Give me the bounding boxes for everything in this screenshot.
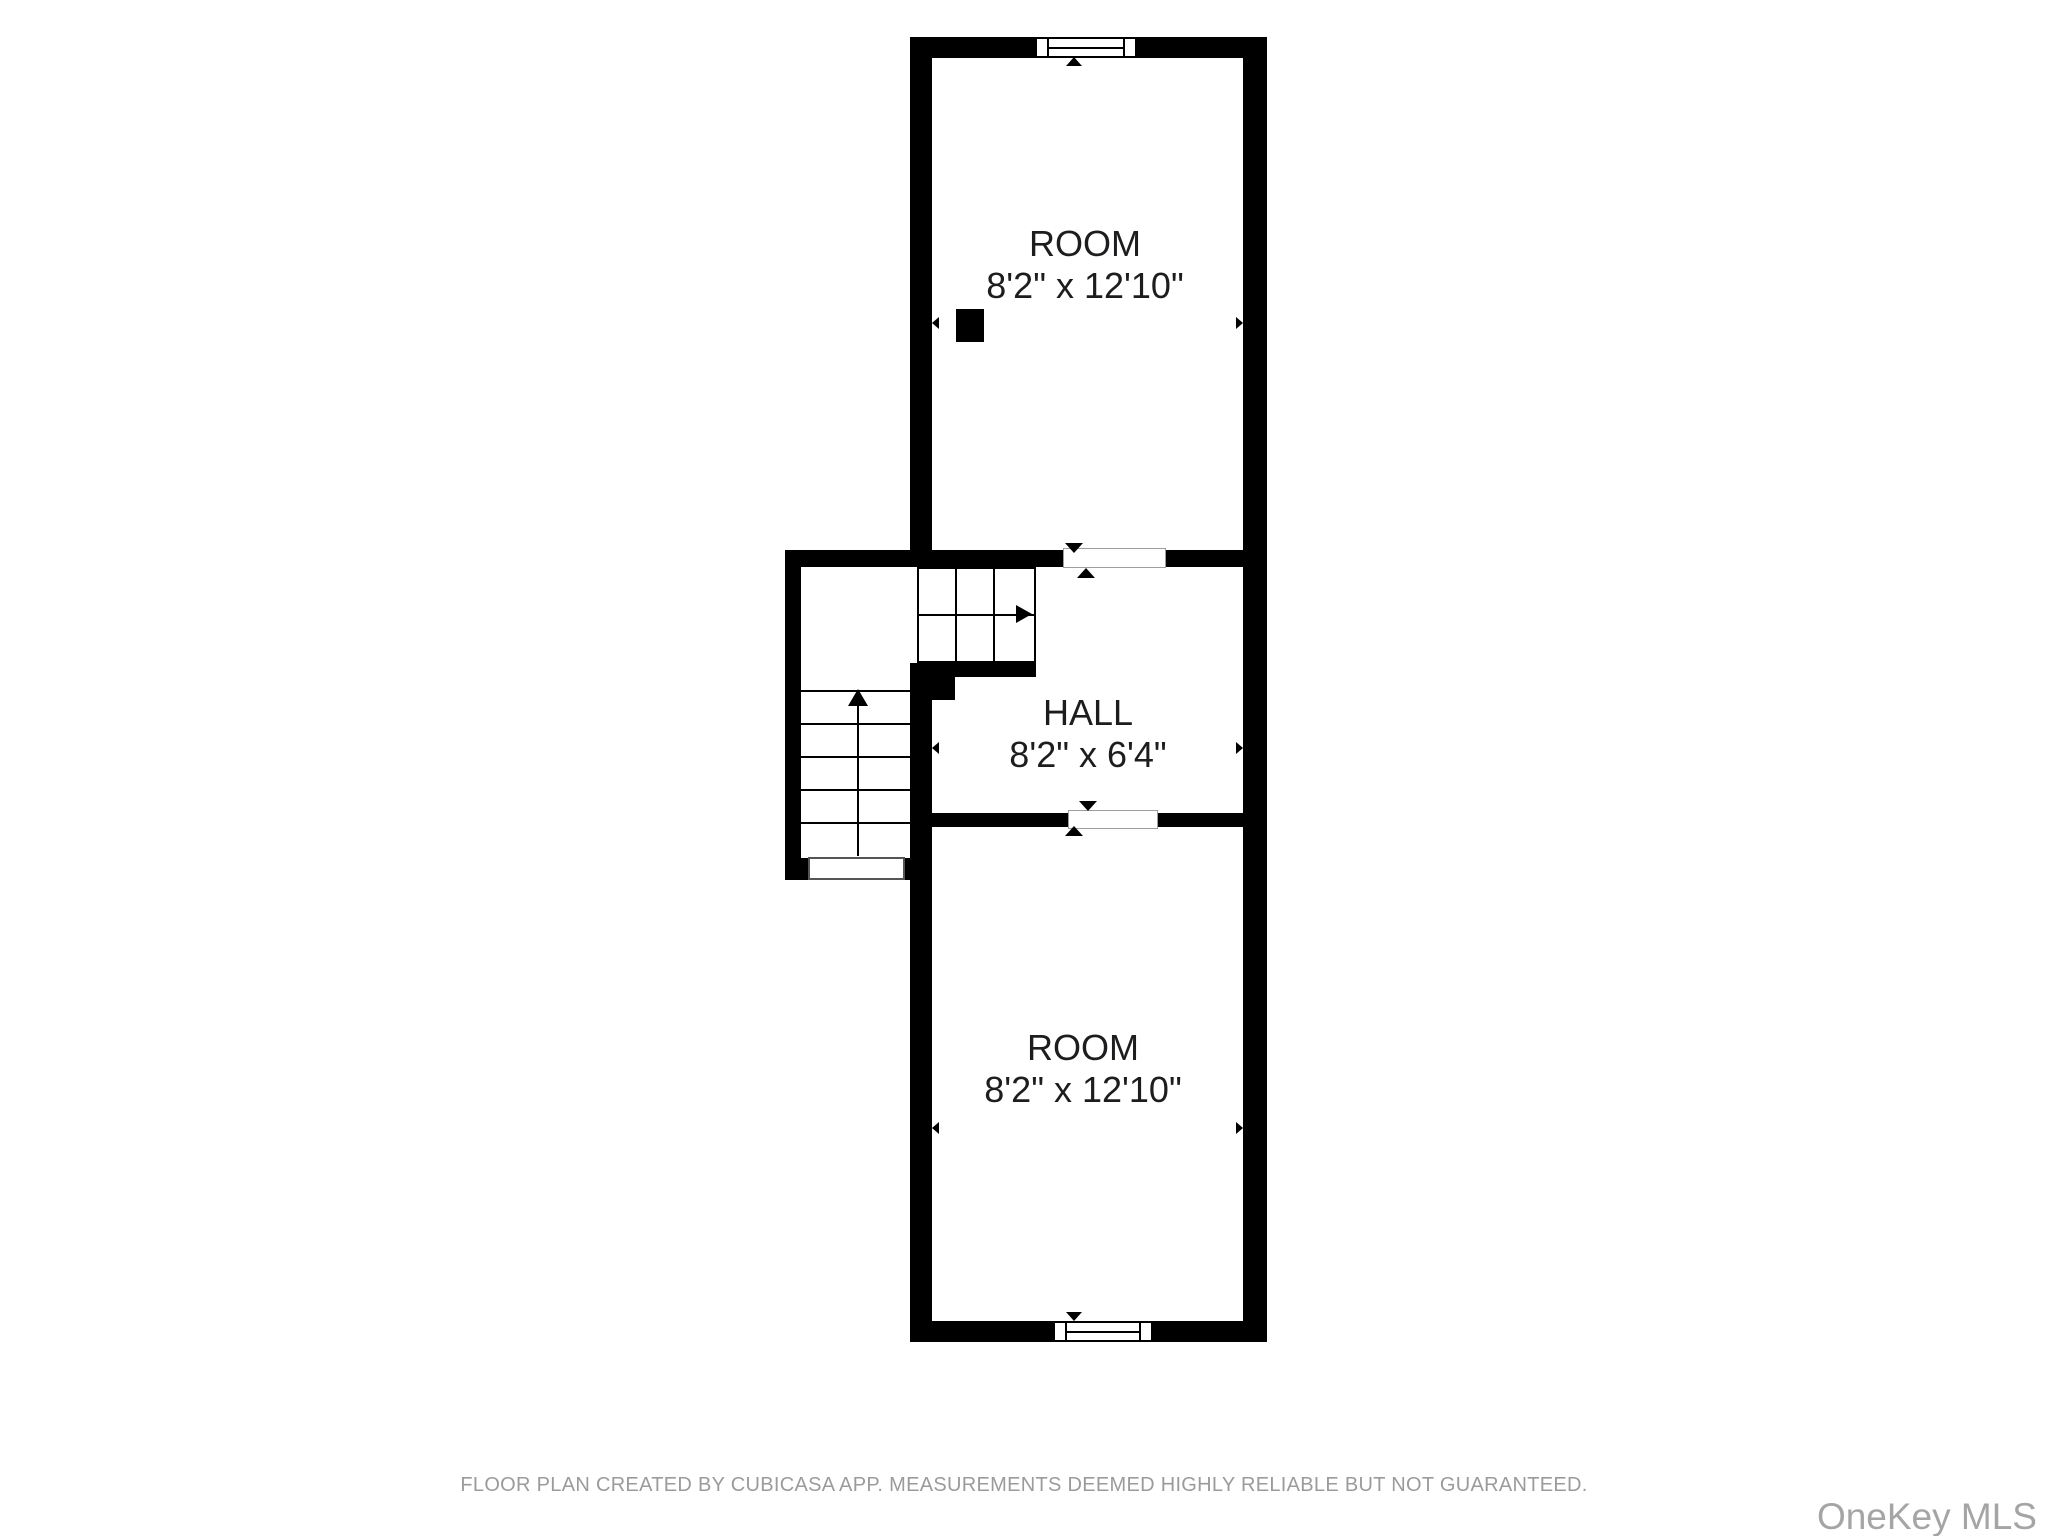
- room-dimensions: 8'2" x 12'10": [986, 265, 1183, 307]
- dimension-arrow-icon: [932, 317, 939, 329]
- wall-stair-left: [785, 550, 801, 880]
- wall-under-winder-chunk: [917, 677, 955, 700]
- dimension-arrow-icon: [1236, 317, 1243, 329]
- opening-marker-icon: [1077, 568, 1095, 578]
- wall-left-lower: [910, 663, 932, 1342]
- hall-label: HALL 8'2" x 6'4": [1009, 692, 1166, 776]
- footer-disclaimer: FLOOR PLAN CREATED BY CUBICASA APP. MEAS…: [460, 1474, 1587, 1497]
- window-bottom: [1053, 1321, 1153, 1342]
- room-name: HALL: [1009, 692, 1166, 734]
- floor-plan-canvas: ROOM 8'2" x 12'10" HALL 8'2" x 6'4" ROOM…: [0, 0, 2048, 1536]
- staircase-straight-run: [801, 690, 910, 858]
- stair-up-arrow-icon: [848, 689, 868, 706]
- room-top-label: ROOM 8'2" x 12'10": [986, 223, 1183, 307]
- opening-marker-icon: [1065, 543, 1083, 553]
- opening-stair-exit: [808, 857, 905, 880]
- stair-tread-line: [801, 756, 910, 758]
- window-top: [1035, 37, 1137, 58]
- room-dimensions: 8'2" x 12'10": [984, 1069, 1181, 1111]
- window-sill-line: [1047, 47, 1125, 49]
- room-dimensions: 8'2" x 6'4": [1009, 734, 1166, 776]
- window-marker-icon: [1066, 1312, 1082, 1321]
- wall-left-upper: [910, 37, 932, 567]
- wall-hall-bottomroom-right: [1158, 813, 1243, 827]
- stair-up-arrow-shaft: [857, 705, 859, 856]
- room-bottom-label: ROOM 8'2" x 12'10": [984, 1027, 1181, 1111]
- dimension-arrow-icon: [932, 742, 939, 754]
- dimension-arrow-icon: [1236, 1122, 1243, 1134]
- dimension-arrow-icon: [1236, 742, 1243, 754]
- wall-under-winder-strip: [917, 663, 1036, 677]
- wall-toproom-hall-right: [1166, 550, 1243, 567]
- dimension-arrow-icon: [932, 1122, 939, 1134]
- stair-tread-line: [801, 789, 910, 791]
- wall-toproom-hall-left: [785, 550, 1063, 567]
- room-name: ROOM: [984, 1027, 1181, 1069]
- window-marker-icon: [1066, 57, 1082, 66]
- opening-marker-icon: [1079, 801, 1097, 811]
- wall-right: [1243, 37, 1267, 1342]
- room-name: ROOM: [986, 223, 1183, 265]
- opening-marker-icon: [1065, 826, 1083, 836]
- wall-hall-bottomroom-left: [910, 813, 1068, 827]
- stair-tread-line: [801, 723, 910, 725]
- stair-right-arrow-icon: [1016, 605, 1032, 623]
- stair-tread-line: [801, 822, 910, 824]
- column-block: [956, 309, 984, 342]
- window-sill-line: [1065, 1331, 1141, 1333]
- watermark-text: OneKey MLS: [1817, 1496, 2037, 1536]
